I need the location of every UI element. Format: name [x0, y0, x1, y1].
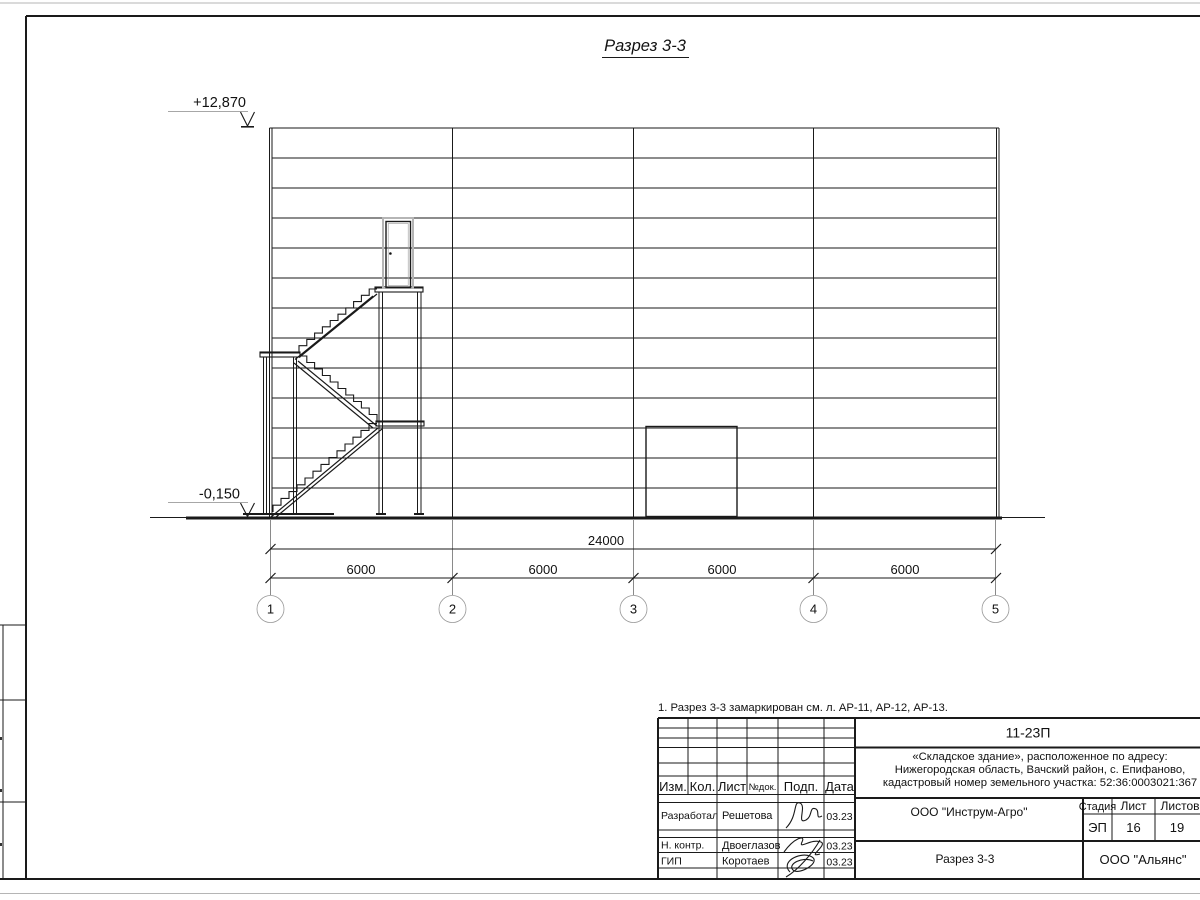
external-stair	[260, 287, 424, 517]
sheet-value: 16	[1126, 820, 1140, 835]
stair-flight-1-stringer	[271, 428, 382, 517]
dim-span-label: 6000	[891, 562, 920, 577]
col-podp: Подп.	[784, 779, 819, 794]
view-title-text: Разрез 3-3	[604, 37, 687, 55]
col-ndok: №док.	[749, 782, 777, 793]
stair-flight-3-stringer	[295, 294, 377, 360]
stair-flight-2-steps	[299, 356, 377, 421]
axis-label: 1	[267, 602, 274, 617]
signature-gip	[787, 855, 814, 872]
col-izm: Изм.	[659, 779, 687, 794]
company-name: ООО "Альянс"	[1100, 852, 1187, 867]
drawing-sheet: Разрез 3-3	[0, 0, 1200, 900]
sheet-label: Лист	[1120, 799, 1147, 813]
stage-value: ЭП	[1088, 820, 1107, 835]
gate-opening	[646, 427, 737, 517]
row-date: 03.23	[826, 857, 852, 869]
elevation-mark-top: +12,870	[168, 95, 255, 127]
stair-right-posts	[379, 292, 421, 514]
sheet-frame	[0, 16, 1200, 879]
object-address-line: Нижегородская область, Вачский район, с.…	[895, 764, 1186, 776]
door-handle	[389, 252, 392, 255]
object-address-line: кадастровый номер земельного участка: 52…	[883, 777, 1197, 789]
side-stamp-dividers	[0, 625, 26, 802]
side-stamp-text-fragment	[0, 737, 2, 740]
stair-flight-3-steps	[299, 289, 377, 352]
elevation-top-arrow-icon	[241, 112, 255, 126]
stair-flight-1-steps	[273, 424, 377, 512]
dim-span-label: 6000	[529, 562, 558, 577]
elevation-top-value: +12,870	[193, 95, 246, 111]
dim-total-label: 24000	[588, 533, 624, 548]
elevation-mark-bottom: -0,150	[168, 487, 255, 517]
grid-axis-bubbles: 1 2 3 4 5	[257, 596, 1009, 623]
dimensions: 24000 6000 6000 6000 6000 1 2 3 4 5	[257, 520, 1009, 623]
sheet-note: 1. Разрез 3-3 замаркирован см. л. АР-11,…	[658, 702, 948, 714]
side-stamp-text-fragment	[0, 843, 2, 846]
org-name: ООО "Инструм-Агро"	[911, 805, 1028, 819]
sheets-label: Листов	[1161, 799, 1200, 813]
stair-flight-2-stringer	[294, 361, 377, 428]
ground-line	[150, 514, 1045, 518]
sheets-value: 19	[1170, 820, 1184, 835]
axis-label: 5	[992, 602, 999, 617]
side-stamp-text-fragment	[0, 789, 2, 792]
stage-label: Стадия	[1079, 801, 1117, 813]
dim-span-label: 6000	[347, 562, 376, 577]
object-address-line: «Складское здание», расположенное по адр…	[912, 751, 1167, 763]
interior-grid-columns	[453, 128, 814, 517]
col-list: Лист	[718, 779, 746, 794]
side-stamp-strip	[0, 625, 26, 878]
view-title: Разрез 3-3	[602, 37, 689, 58]
row-name: Двоеглазов	[722, 840, 781, 852]
elevation-bottom-value: -0,150	[199, 487, 240, 503]
panel-joint-lines	[272, 158, 997, 488]
extension-lines	[271, 520, 996, 595]
stair-left-posts	[264, 357, 297, 514]
row-date: 03.23	[826, 811, 852, 823]
dim-span-label: 6000	[708, 562, 737, 577]
signature-razrabotal	[786, 803, 822, 828]
doc-number: 11-23П	[1006, 725, 1051, 741]
axis-label: 4	[810, 602, 817, 617]
sheet-title-cell: Разрез 3-3	[936, 852, 995, 866]
row-role: Н. контр.	[661, 840, 704, 852]
axis-label: 3	[630, 602, 637, 617]
row-date: 03.23	[826, 841, 852, 853]
row-name: Решетова	[722, 810, 773, 822]
row-role: ГИП	[661, 856, 682, 868]
row-role: Разработал	[661, 810, 718, 822]
col-data: Дата	[825, 779, 855, 794]
col-kol: Кол.	[690, 779, 716, 794]
title-block: Изм. Кол. Лист №док. Подп. Дата Разработ…	[658, 718, 1200, 878]
row-name: Коротаев	[722, 856, 770, 868]
title-block-column-lines	[688, 718, 824, 878]
axis-label: 2	[449, 602, 456, 617]
